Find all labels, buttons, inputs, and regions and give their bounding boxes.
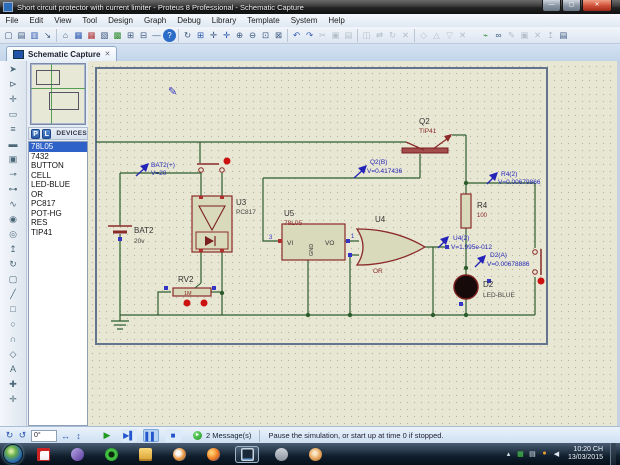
wire-autorouter-icon[interactable]: ⌁ [479,29,492,42]
pick-devices-button[interactable]: P [31,129,40,139]
svg-text:D2(A): D2(A) [490,252,507,259]
instrument-mode-icon[interactable]: ▢ [5,272,21,287]
taskbar-app-explorer[interactable] [133,446,157,463]
toolbar-separator [56,29,57,42]
orientation-controls: ↻ ↺ 0° ↔ ↕ [3,430,85,442]
block-move-icon[interactable]: ⇄ [373,29,386,42]
decompose-icon[interactable]: ✕ [456,29,469,42]
save-project-icon[interactable]: ▥ [28,29,41,42]
tray-green-icon[interactable]: ▦ [516,450,525,458]
rv2-decrease-dot[interactable] [184,300,191,307]
import-project-icon[interactable]: ↘ [41,29,54,42]
zoom-all-icon[interactable]: ⊠ [272,29,285,42]
rv2-increase-dot[interactable] [201,300,208,307]
rotate-anticlockwise-button[interactable]: ↺ [16,430,29,441]
d2-led-component[interactable]: D2 LED-BLUE [454,275,515,306]
zoom-to-child-icon[interactable]: ▤ [557,29,570,42]
new-sheet-icon[interactable]: ⊞ [124,29,137,42]
system-tray: ▴▦▤●◀ 10:20 CH 13/03/2015 [504,443,616,465]
terminal-mode-icon[interactable]: ⊸ [5,167,21,182]
pick-parts-icon[interactable]: ◇ [417,29,430,42]
svg-text:3: 3 [269,235,273,241]
taskbar-app-red-grid[interactable] [31,446,55,463]
taskbar-app-media-player[interactable] [167,446,191,463]
simulation-controls: ▶▶▌▌▌■ [99,429,181,442]
q2-transistor-component[interactable]: Q2 TIP41 [402,117,452,153]
2d-line-mode-icon[interactable]: ╱ [5,287,21,302]
2d-path-mode-icon[interactable]: ◇ [5,347,21,362]
overview-minimap[interactable] [30,63,86,125]
svg-text:R4(2): R4(2) [501,171,517,178]
schematic-tab-icon [13,50,24,59]
svg-text:V=0.417436: V=0.417436 [367,168,403,175]
start-button[interactable] [3,444,23,464]
menu-template[interactable]: Template [242,16,285,25]
object-selector-panel: P L DEVICES 78L057432BUTTONCELLLED-BLUEO… [28,61,88,426]
schematic-drawing: BAT2 20v [88,61,620,426]
x-mirror-button[interactable]: ↔ [59,431,72,441]
svg-text:78L05: 78L05 [284,220,302,227]
status-bar: ↻ ↺ 0° ↔ ↕ ▶▶▌▌▌■ ▸ 2 Message(s) Pause t… [0,426,620,444]
probe-bat2-plus[interactable]: BAT2(+) V=20 [136,162,175,177]
taskbar-clock[interactable]: 10:20 CH 13/03/2015 [568,446,603,462]
main-area: ➤⊳✛▭≡▬▣⊸⊶∿◉◎↥↻▢╱□○∩◇A✚✛ P L DEVICES 78L0… [0,61,620,426]
design-rule-icon[interactable]: ▣ [518,29,531,42]
menu-library[interactable]: Library [206,16,241,25]
home-icon[interactable]: ⌂ [59,29,72,42]
tape-recorder-mode-icon[interactable]: ◉ [5,212,21,227]
rv2-potentiometer-component[interactable]: RV2 1M [164,275,216,307]
r4-resistor-component[interactable]: R4 100 [461,194,488,228]
svg-text:GND: GND [309,244,315,256]
cut-icon[interactable]: ✂ [316,29,329,42]
zoom-area-icon[interactable]: ⊡ [259,29,272,42]
svg-text:TIP41: TIP41 [419,128,437,135]
bus-mode-icon[interactable]: ▬ [5,137,21,152]
tray-volume-icon[interactable]: ◀ [552,450,561,458]
devices-header: DEVICES [56,130,87,137]
graph-mode-icon[interactable]: ∿ [5,197,21,212]
generator-mode-icon[interactable]: ◎ [5,227,21,242]
probe-r4-2[interactable]: R4(2) V=0.00679866 [487,171,541,186]
angle-field[interactable]: 0° [31,430,57,442]
device-list-item[interactable]: 7432 [29,152,87,162]
menu-view[interactable]: View [49,16,77,25]
probe-d2-anode[interactable]: D2(A) V=0.00678886 [475,252,530,268]
clock-date: 13/03/2015 [568,454,603,462]
menu-graph[interactable]: Graph [138,16,171,25]
selection-mode-icon[interactable]: ➤ [5,62,21,77]
u3-optocoupler-component[interactable]: U3 PC817 [192,196,256,252]
ground-symbol [111,321,129,329]
exit-application-icon[interactable]: — [150,29,163,42]
minimap-thumbnail-1 [36,70,60,85]
device-pin-mode-icon[interactable]: ⊶ [5,182,21,197]
goto-parent-sheet-icon[interactable]: ↥ [544,29,557,42]
selector-header: P L DEVICES [28,127,88,140]
remove-sheet-icon[interactable]: ⊟ [137,29,150,42]
proteus-window: Short circuit protector with current lim… [0,0,620,465]
svg-text:V=20: V=20 [151,170,167,177]
stop-button[interactable]: ■ [165,429,181,442]
grid-toggle-icon[interactable]: ⊞ [194,29,207,42]
device-list-item[interactable]: CELL [29,171,87,181]
message-count[interactable]: 2 Message(s) [206,431,251,440]
rotate-clockwise-button[interactable]: ↻ [3,430,16,441]
schematic-canvas[interactable]: BAT2 20v [88,61,620,426]
taskbar-apps [31,446,337,463]
voltage-probe-mode-icon[interactable]: ↥ [5,242,21,257]
toolbar-separator [414,29,415,42]
property-assignment-icon[interactable]: ✎ [505,29,518,42]
3d-visualizer-icon[interactable]: ▧ [98,29,111,42]
editor-cursor-icon: ✎ [168,86,177,98]
main-toolbar: ▢▤▥↘⌂▦▦▧▩⊞⊟—?↻⊞✛✛⊕⊖⊡⊠↶↷✂▣▤◫⇄↻✕◇△▽✕⌁∞✎▣✕↥… [0,27,620,44]
library-manager-button[interactable]: L [42,129,51,139]
window-controls: —▢✕ [541,0,612,12]
svg-text:U4: U4 [375,215,386,224]
text-script-mode-icon[interactable]: ≡ [5,122,21,137]
minimap-crosshair-h [31,88,85,89]
taskbar-app-green-ring[interactable] [99,446,123,463]
make-device-icon[interactable]: △ [430,29,443,42]
svg-text:PC817: PC817 [236,209,256,216]
devices-list: 78L057432BUTTONCELLLED-BLUEORPC817POT-HG… [28,141,88,426]
taskbar-app-kmplayer[interactable] [65,446,89,463]
paste-icon[interactable]: ▤ [342,29,355,42]
svg-text:U3: U3 [236,198,247,207]
2d-circle-mode-icon[interactable]: ○ [5,317,21,332]
svg-text:100: 100 [477,213,488,219]
undo-icon[interactable]: ↶ [290,29,303,42]
search-tag-icon[interactable]: ∞ [492,29,505,42]
svg-text:R4: R4 [477,201,488,210]
2d-arc-mode-icon[interactable]: ∩ [5,332,21,347]
menu-tool[interactable]: Tool [77,16,103,25]
svg-text:V=1.995e-012: V=1.995e-012 [451,244,492,251]
svg-text:U4(2): U4(2) [453,235,469,242]
status-text: Pause the simulation, or start up at tim… [268,431,443,440]
menu-debug[interactable]: Debug [172,16,207,25]
svg-text:Q2(B): Q2(B) [370,159,387,166]
zoom-in-icon[interactable]: ⊕ [233,29,246,42]
tray-orange-icon[interactable]: ● [540,450,549,458]
pcb-layout-icon[interactable]: ▦ [85,29,98,42]
svg-text:BAT2(+): BAT2(+) [151,162,175,169]
svg-text:V=0.00679866: V=0.00679866 [498,179,541,186]
close-button[interactable]: ✕ [582,0,612,12]
taskbar-app-firefox[interactable] [201,446,225,463]
menu-system[interactable]: System [285,16,323,25]
simulation-log-icon[interactable]: ▸ [193,431,202,440]
menu-design[interactable]: Design [103,16,139,25]
redraw-icon[interactable]: ↻ [181,29,194,42]
status-divider [259,430,260,442]
probe-q2-base[interactable]: Q2(B) V=0.417436 [354,159,403,178]
2d-symbol-mode-icon[interactable]: ✚ [5,377,21,392]
clock-time: 10:20 CH [568,446,603,454]
current-probe-mode-icon[interactable]: ↻ [5,257,21,272]
svg-text:1: 1 [351,234,355,240]
minimap-thumbnail-2 [49,92,79,110]
svg-text:RV2: RV2 [178,275,194,284]
svg-text:VO: VO [325,240,334,247]
tab-close-icon[interactable]: ✕ [104,50,110,58]
svg-text:VI: VI [287,240,293,247]
device-list-item[interactable]: TIP41 [29,228,87,238]
svg-text:U5: U5 [284,209,295,218]
tab-schematic-capture[interactable]: Schematic Capture ✕ [6,46,117,61]
menu-file[interactable]: File [0,16,24,25]
cross-probe-icon[interactable]: ✕ [531,29,544,42]
block-delete-icon[interactable]: ✕ [399,29,412,42]
toolbar-separator [357,29,358,42]
u4-or-gate-component[interactable]: U4 OR [357,215,425,275]
show-desktop-button[interactable] [610,443,616,465]
tray-show-hidden-icons[interactable]: ▴ [504,450,513,458]
subcircuit-mode-icon[interactable]: ▣ [5,152,21,167]
new-project-icon[interactable]: ▢ [2,29,15,42]
menu-bar: FileEditViewToolDesignGraphDebugLibraryT… [0,14,620,28]
tab-bar: Schematic Capture ✕ [0,44,620,62]
device-list-item[interactable]: LED-BLUE [29,180,87,190]
svg-text:OR: OR [373,268,383,275]
block-copy-icon[interactable]: ◫ [360,29,373,42]
menu-edit[interactable]: Edit [24,16,49,25]
device-list-item[interactable]: PC817 [29,199,87,209]
design-explorer-icon[interactable]: ▩ [111,29,124,42]
open-project-icon[interactable]: ▤ [15,29,28,42]
component-mode-icon[interactable]: ⊳ [5,77,21,92]
svg-text:V=0.00678886: V=0.00678886 [487,261,530,268]
taskbar-app-proteus-active[interactable] [235,446,259,463]
svg-text:D2: D2 [483,280,494,289]
tray-icons: ▴▦▤●◀ [504,450,561,458]
device-list-item[interactable]: RES [29,218,87,228]
wire-label-mode-icon[interactable]: ▭ [5,107,21,122]
toolbar-separator [287,29,288,42]
block-rotate-icon[interactable]: ↻ [386,29,399,42]
device-list-item[interactable]: BUTTON [29,161,87,171]
button-actuator-dot[interactable] [224,158,231,165]
maximize-button[interactable]: ▢ [562,0,581,12]
play-button[interactable]: ▶ [99,429,115,442]
button-component[interactable] [197,158,231,173]
device-list-item[interactable]: POT-HG [29,209,87,219]
svg-text:BAT2: BAT2 [134,226,154,235]
mode-toolbar: ➤⊳✛▭≡▬▣⊸⊶∿◉◎↥↻▢╱□○∩◇A✚✛ [0,61,27,426]
redo-icon[interactable]: ↷ [303,29,316,42]
y-mirror-button[interactable]: ↕ [72,431,85,441]
pause-button[interactable]: ▌▌ [143,429,159,442]
zoom-out-icon[interactable]: ⊖ [246,29,259,42]
2d-box-mode-icon[interactable]: □ [5,302,21,317]
device-list-item[interactable]: OR [29,190,87,200]
bat2-component[interactable]: BAT2 20v [108,226,154,245]
tab-label: Schematic Capture [28,50,100,59]
svg-text:Q2: Q2 [419,117,430,126]
step-button[interactable]: ▶▌ [121,429,137,442]
2d-marker-mode-icon[interactable]: ✛ [5,392,21,407]
windows-taskbar: ▴▦▤●◀ 10:20 CH 13/03/2015 [0,443,620,465]
help-icon[interactable]: ? [163,29,176,42]
svg-text:20v: 20v [134,238,145,245]
message-area[interactable]: ▸ 2 Message(s) [193,431,251,440]
taskbar-app-proteus8[interactable] [303,446,327,463]
minimize-button[interactable]: — [542,0,561,12]
schematic-capture-icon[interactable]: ▦ [72,29,85,42]
svg-text:1M: 1M [184,291,192,297]
app-icon [3,2,13,12]
device-list-item[interactable]: 78L05 [29,142,87,152]
toolbar-separator [178,29,179,42]
svg-text:LED-BLUE: LED-BLUE [483,292,515,299]
u5-regulator-component[interactable]: 3 1 VI VO GND U5 78L05 [269,209,355,260]
2d-text-mode-icon[interactable]: A [5,362,21,377]
copy-icon[interactable]: ▣ [329,29,342,42]
menu-help[interactable]: Help [323,16,350,25]
window-title: Short circuit protector with current lim… [17,3,304,12]
packaging-tool-icon[interactable]: ▽ [443,29,456,42]
pan-icon[interactable]: ✛ [220,29,233,42]
taskbar-app-gray[interactable] [269,446,293,463]
false-origin-icon[interactable]: ✛ [207,29,220,42]
tray-input-icon[interactable]: ▤ [528,450,537,458]
junction-dot-mode-icon[interactable]: ✛ [5,92,21,107]
title-bar: Short circuit protector with current lim… [0,0,620,14]
button2-actuator-dot[interactable] [538,278,545,285]
